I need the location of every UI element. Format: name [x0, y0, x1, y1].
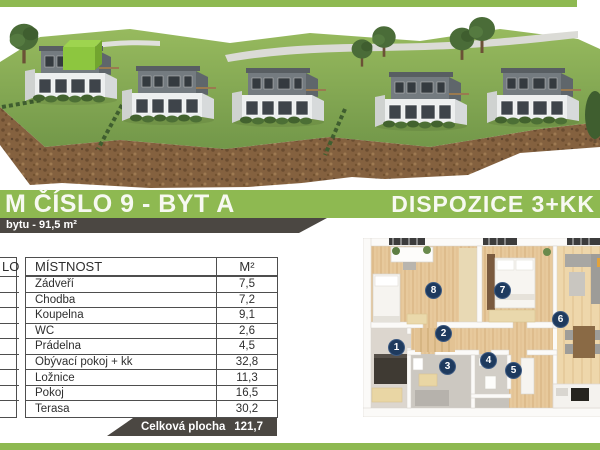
table-row: WC 2,6 — [26, 324, 277, 340]
table-row: Chodba 7,2 — [26, 293, 277, 309]
site-render — [0, 7, 600, 190]
number-cell — [0, 324, 19, 340]
room-marker: 5 — [505, 362, 522, 379]
column-header-area: M² — [216, 258, 277, 275]
table-row: Koupelna 9,1 — [26, 308, 277, 324]
disposition-label: DISPOZICE 3+KK — [391, 191, 595, 218]
entry-furniture — [372, 354, 407, 402]
room-area: 32,8 — [216, 355, 277, 370]
room-area: 4,5 — [216, 339, 277, 354]
room-name: Ložnice — [26, 370, 216, 385]
marker-number: 8 — [431, 285, 437, 296]
table-row: Zádveří 7,5 — [26, 277, 277, 293]
area-note-bar: bytu - 91,5 m² — [0, 218, 330, 233]
marker-number: 3 — [445, 361, 451, 372]
room-area: 9,1 — [216, 308, 277, 323]
room-name: Obývací pokoj + kk — [26, 355, 216, 370]
marker-number: 7 — [500, 285, 506, 296]
room-marker: 3 — [439, 358, 456, 375]
marker-number: 5 — [511, 365, 517, 376]
ceiling-grilles — [389, 238, 600, 245]
room-table: MÍSTNOST M² Zádveří 7,5 Chodba 7,2 Koupe… — [25, 257, 278, 418]
room-area: 7,5 — [216, 277, 277, 292]
room-marker: 8 — [425, 282, 442, 299]
marker-number: 6 — [558, 314, 564, 325]
number-cell — [0, 308, 19, 324]
table-header-row: MÍSTNOST M² — [26, 258, 277, 277]
room-marker: 1 — [388, 339, 405, 356]
table-row: Obývací pokoj + kk 32,8 — [26, 355, 277, 371]
brochure-page: M ČÍSLO 9 - BYT A DISPOZICE 3+KK bytu - … — [0, 0, 600, 450]
floor-plan-illustration — [363, 238, 600, 417]
room-name: Pokoj — [26, 386, 216, 401]
site-render-illustration — [0, 7, 600, 190]
room-area: 7,2 — [216, 293, 277, 308]
number-cell — [0, 339, 19, 355]
room-name: Zádveří — [26, 277, 216, 292]
bottom-accent-bar — [0, 443, 600, 450]
number-cell — [0, 277, 19, 293]
total-value: 121,7 — [234, 421, 263, 433]
column-header-number: LO — [0, 258, 19, 277]
room-table-number-column: LO — [0, 257, 17, 418]
room-area: 16,5 — [216, 386, 277, 401]
room-marker: 4 — [480, 352, 497, 369]
room-name: Chodba — [26, 293, 216, 308]
title-bar: M ČÍSLO 9 - BYT A DISPOZICE 3+KK — [0, 190, 600, 218]
room-name: WC — [26, 324, 216, 339]
room-area: 11,3 — [216, 370, 277, 385]
number-cell — [0, 386, 19, 402]
table-row: Terasa 30,2 — [26, 401, 277, 417]
number-cell — [0, 355, 19, 371]
room-marker: 2 — [435, 325, 452, 342]
table-row: Pokoj 16,5 — [26, 386, 277, 402]
room-marker: 6 — [552, 311, 569, 328]
page-title: M ČÍSLO 9 - BYT A — [5, 190, 235, 219]
area-note: bytu - 91,5 m² — [6, 219, 77, 231]
room-name: Koupelna — [26, 308, 216, 323]
number-cell — [0, 401, 19, 417]
number-cell — [0, 293, 19, 309]
highlighted-unit-box — [63, 40, 102, 70]
room-area: 2,6 — [216, 324, 277, 339]
column-header-room: MÍSTNOST — [26, 258, 216, 275]
room-name: Terasa — [26, 401, 216, 417]
marker-number: 2 — [441, 328, 447, 339]
table-row: Ložnice 11,3 — [26, 370, 277, 386]
room-name: Prádelna — [26, 339, 216, 354]
table-row: Prádelna 4,5 — [26, 339, 277, 355]
room-area: 30,2 — [216, 401, 277, 417]
kitchen-furniture — [553, 384, 600, 408]
table-total-bar: Celková plocha 121,7 — [107, 418, 277, 436]
marker-number: 4 — [486, 355, 492, 366]
room-marker: 7 — [494, 282, 511, 299]
top-accent-bar — [0, 0, 577, 7]
marker-number: 1 — [394, 342, 400, 353]
floor-plan: 1 2 3 4 5 6 7 8 — [363, 238, 600, 417]
utility-cabinet — [521, 358, 534, 394]
total-label: Celková plocha — [141, 421, 225, 433]
number-cell — [0, 370, 19, 386]
